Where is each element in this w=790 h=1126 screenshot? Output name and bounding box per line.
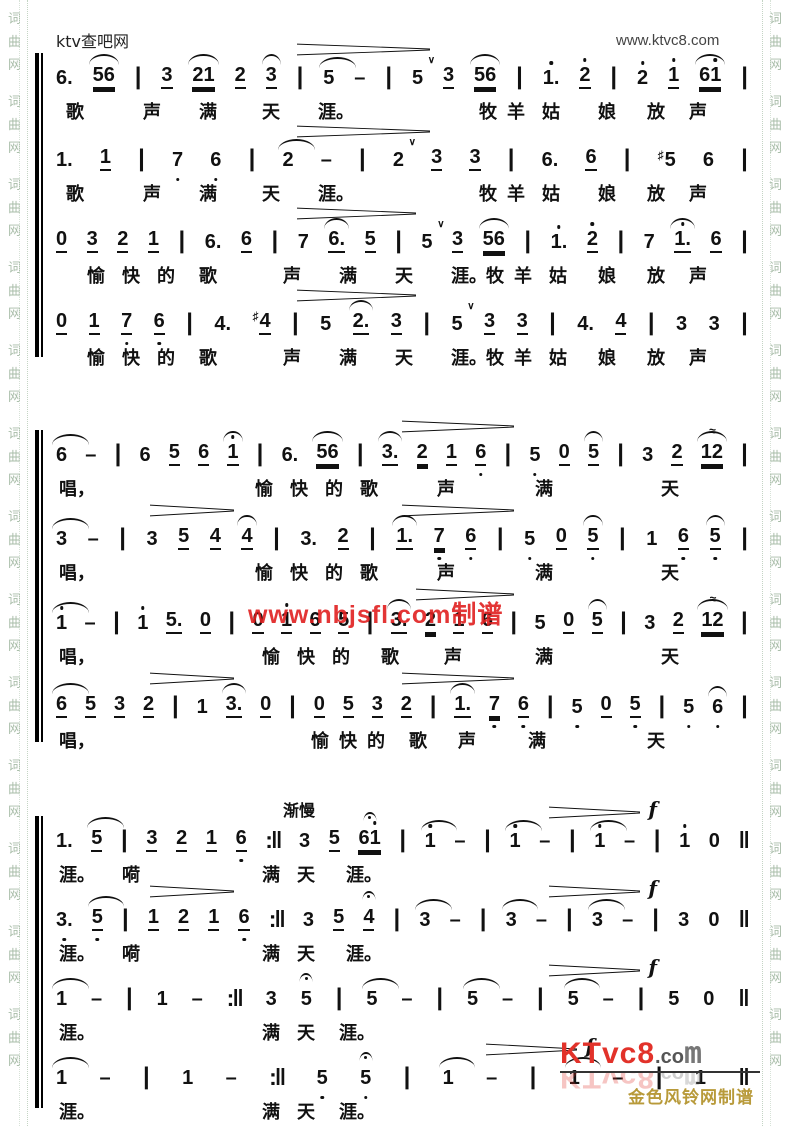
note-7: 7 (172, 150, 183, 171)
lyric-syllable: 涯。 (451, 262, 487, 288)
barline: | (423, 310, 430, 335)
hairpin-dynamic (297, 43, 430, 56)
hairpin-dynamic (297, 289, 416, 302)
border-gap (763, 492, 788, 506)
note-1dot: 1. (396, 526, 413, 550)
octave-dot-above (583, 58, 587, 62)
lyric-syllable: 歌 (360, 475, 378, 501)
tie-arc (463, 978, 500, 989)
border-character: 网 (2, 220, 27, 243)
music-line: 3.5|1216:‖354|3–|3–|3–|30‖ (52, 897, 752, 931)
border-character: 曲 (2, 363, 27, 386)
border-gap (763, 990, 788, 1004)
octave-dot-above (373, 821, 377, 825)
music-line: 0176|4.♯4|52.3|5∨33|4.4|33| (52, 301, 752, 335)
note-5: 5 (301, 989, 312, 1010)
barline: | (272, 228, 279, 253)
note-0: 0 (314, 694, 325, 718)
note-1: 1 (56, 1068, 67, 1089)
note-2: 2 (143, 694, 154, 718)
border-character: 网 (763, 635, 788, 658)
barline: | (186, 310, 193, 335)
dash-continuation: – (536, 910, 547, 931)
lyric-syllable: 的 (157, 262, 175, 288)
border-character: 曲 (763, 944, 788, 967)
lyric-syllable: 唱， (59, 727, 95, 753)
note-1dot: 1. (56, 150, 73, 171)
barline: | (395, 228, 402, 253)
lyric-syllable: 歌 (199, 344, 217, 370)
lyric-syllable: 快 (290, 559, 308, 585)
slur-arc (670, 218, 695, 229)
breath-mark-icon: ∨ (467, 302, 474, 312)
hairpin-dynamic: f (549, 885, 640, 898)
note-5: 5 (683, 697, 694, 718)
octave-dot-above (141, 606, 145, 610)
note-6: 6 (210, 150, 221, 171)
logo-wordmark: KTvc8.com (560, 1036, 765, 1071)
voice-row-4: 6532|13.0|0532|1.76|505|56|唱，愉快的歌声满天 (52, 684, 752, 768)
note-1: 1 (89, 311, 100, 335)
music-line: 1.5|3216:‖3561|1–|1–|1–|10‖ (52, 818, 752, 852)
note-6dot: 6. (542, 150, 559, 171)
note-3: 3 (87, 229, 98, 253)
lyric-syllable: 歌 (381, 643, 399, 669)
barline: | (257, 441, 264, 466)
breath-mark-icon: ∨ (437, 220, 444, 230)
tie-arc (52, 518, 89, 529)
border-character: 词 (2, 672, 27, 695)
border-character: 网 (2, 54, 27, 77)
barline: | (530, 1064, 537, 1089)
octave-dot-above (713, 58, 717, 62)
note-1: 1 (679, 831, 690, 852)
music-line: 1–|1–:‖35|5–|5–|5–|50‖ (52, 976, 752, 1010)
note-1: 1 (56, 613, 67, 634)
dash-continuation: – (226, 1068, 237, 1089)
note-1: 1 (668, 65, 679, 89)
note-5: 5 (317, 1068, 328, 1089)
barline: | (385, 64, 392, 89)
note-3: 3 (506, 910, 517, 931)
note-3dot: 3. (226, 694, 243, 718)
border-character: 网 (763, 801, 788, 824)
note-3: 3 (56, 529, 67, 550)
lyric-syllable: 满 (528, 727, 546, 753)
note-1: 1 (56, 989, 67, 1010)
repeat-barline: :‖ (227, 986, 242, 1010)
barline: | (504, 441, 511, 466)
note-4dot: 4. (577, 314, 594, 335)
note-4: 4 (210, 526, 221, 550)
barline: | (404, 1064, 411, 1089)
dash-continuation: – (603, 989, 614, 1010)
note-1: 1 (182, 1068, 193, 1089)
credit-text: 金色风铃网制谱 (628, 1083, 754, 1108)
border-character: 网 (2, 801, 27, 824)
note-3dot: 3. (382, 442, 399, 466)
dash-continuation: – (401, 989, 412, 1010)
lyric-syllable: 姑 (542, 180, 560, 206)
logo-brand-m: m (684, 1036, 705, 1071)
repeat-barline: :‖ (269, 907, 284, 931)
lyric-syllable: 满 (262, 940, 280, 966)
border-character: 网 (763, 967, 788, 990)
border-character: 词 (2, 91, 27, 114)
fermata-icon (363, 812, 376, 821)
note-3: 3 (592, 910, 603, 931)
note-5: 5 (343, 694, 354, 718)
note-2: 2 (176, 828, 187, 852)
lyric-syllable: 涯。 (451, 344, 487, 370)
barline: | (228, 609, 235, 634)
border-character: 词 (2, 838, 27, 861)
border-character: 曲 (2, 944, 27, 967)
border-gap (2, 160, 27, 174)
border-character: 词 (763, 921, 788, 944)
lyric-syllable: 的 (325, 475, 343, 501)
logo-brand-red: KTvc8 (560, 1037, 655, 1070)
note-3: 3 (299, 831, 310, 852)
barline: | (547, 693, 554, 718)
lyric-syllable: 涯。 (59, 861, 95, 887)
note-3: 3 (469, 147, 480, 171)
left-decorative-border: 词曲网词曲网词曲网词曲网词曲网词曲网词曲网词曲网词曲网词曲网词曲网词曲网词曲网 (2, 0, 28, 1126)
tie-arc (52, 1057, 89, 1068)
tie-arc (319, 57, 356, 68)
note-5: 5 (668, 989, 679, 1010)
lyric-syllable: 的 (325, 559, 343, 585)
final-barline: ‖ (738, 986, 747, 1010)
lyric-syllable: 涯。 (59, 1098, 95, 1124)
note-3: 3 (161, 65, 172, 89)
lyric-syllable: 歌 (66, 98, 84, 124)
lyric-syllable: 放 (647, 344, 665, 370)
note-3: 3 (266, 989, 277, 1010)
sheet-music-page: 词曲网词曲网词曲网词曲网词曲网词曲网词曲网词曲网词曲网词曲网词曲网词曲网词曲网 … (0, 0, 790, 1126)
barline: | (135, 64, 142, 89)
lyric-syllable: 天 (661, 475, 679, 501)
border-character: 词 (763, 838, 788, 861)
border-character: 网 (763, 552, 788, 575)
barline: | (648, 310, 655, 335)
voice-row-2: 3.5|1216:‖354|3–|3–|3–|30‖涯。嗬满天涯。f (52, 897, 752, 976)
dash-continuation: – (486, 1068, 497, 1089)
border-character: 网 (2, 635, 27, 658)
note-6dot: 6. (328, 229, 345, 253)
note-1: 1 (206, 828, 217, 852)
forte-mark: f (648, 955, 657, 979)
note-2: 2∨ (393, 150, 404, 171)
note-7: 7 (298, 232, 309, 253)
note-6: 6 (154, 311, 165, 335)
note-1: 1 (197, 697, 208, 718)
barline: | (369, 525, 376, 550)
lyric-syllable: 涯。 (59, 1019, 95, 1045)
note-6dot: 6. (282, 445, 299, 466)
lyric-syllable: 愉 (255, 475, 273, 501)
lyric-syllable: 娘 (598, 98, 616, 124)
lyric-syllable: 满 (262, 861, 280, 887)
border-character: 曲 (2, 1027, 27, 1050)
barline: | (741, 693, 748, 718)
lyrics-line: 唱，愉快的歌声满天 (52, 475, 752, 501)
barline: | (179, 228, 186, 253)
note-1dot: 1. (551, 232, 568, 253)
lyric-syllable: 涯。 (346, 861, 382, 887)
slur-arc (188, 54, 218, 65)
barline: | (126, 985, 133, 1010)
note-2: 2 (178, 907, 189, 931)
note-6: 6 (585, 147, 596, 171)
barline: | (115, 441, 122, 466)
octave-dot-above (641, 61, 645, 65)
tie-arc (502, 899, 539, 910)
hairpin-dynamic (402, 420, 514, 433)
final-barline: ‖ (739, 907, 748, 931)
note-2: 2 (282, 150, 293, 171)
note-6: 6 (238, 907, 249, 931)
lyric-syllable: 羊 (507, 180, 525, 206)
barline: | (357, 441, 364, 466)
note-2: 2 (235, 65, 246, 89)
trill-icon: ≈ (710, 593, 716, 605)
note-5: 5 (710, 526, 721, 550)
slur-arc (708, 686, 727, 697)
music-line: 6–|6561|6.56|3.216|505|3212≈| (52, 432, 752, 466)
note-5dot: 5. (166, 610, 183, 634)
lyric-syllable: 声 (444, 643, 462, 669)
tie-arc (505, 820, 542, 831)
lyric-syllable: 声 (689, 98, 707, 124)
site-url: www.ktvc8.com (616, 32, 719, 49)
lyric-syllable: 快 (290, 475, 308, 501)
border-character: 网 (763, 1050, 788, 1073)
lyric-syllable: 姑 (542, 98, 560, 124)
note-5: 5∨ (451, 314, 462, 335)
note-3: 3 (419, 910, 430, 931)
note-12: 12≈ (701, 610, 723, 634)
border-character: 词 (763, 8, 788, 31)
border-character: 词 (2, 423, 27, 446)
lyric-syllable: 愉 (87, 262, 105, 288)
note-1: 1 (157, 989, 168, 1010)
barline: | (617, 441, 624, 466)
barline: | (617, 228, 624, 253)
lyric-syllable: 歌 (360, 559, 378, 585)
border-character: 网 (763, 220, 788, 243)
border-gap (763, 160, 788, 174)
lyric-syllable: 娘 (598, 262, 616, 288)
note-6: 6 (712, 697, 723, 718)
lyric-syllable: 声 (437, 559, 455, 585)
barline: | (741, 441, 748, 466)
note-21: 21 (192, 65, 214, 89)
note-1: 1 (148, 907, 159, 931)
barline: | (249, 146, 256, 171)
barline: | (516, 64, 523, 89)
tie-arc (87, 817, 124, 828)
lyric-syllable: 天 (647, 727, 665, 753)
border-gap (2, 77, 27, 91)
dash-continuation: – (502, 989, 513, 1010)
lyric-syllable: 天 (661, 559, 679, 585)
barline: | (143, 1064, 150, 1089)
note-3: 3 (642, 445, 653, 466)
note-6: 6 (56, 445, 67, 466)
note-3: 3 (303, 910, 314, 931)
border-character: 词 (763, 1004, 788, 1027)
system-bracket (35, 816, 48, 1108)
border-character: 词 (2, 257, 27, 280)
border-gap (763, 907, 788, 921)
dash-continuation: – (192, 989, 203, 1010)
lyric-syllable: 牧 (479, 180, 497, 206)
note-1: 1 (148, 229, 159, 253)
note-6: 6 (241, 229, 252, 253)
lyric-syllable: 天 (661, 643, 679, 669)
barline: | (122, 906, 129, 931)
lyric-syllable: 娘 (598, 180, 616, 206)
octave-dot-above (549, 61, 553, 65)
note-7: 7 (489, 694, 500, 718)
music-line: 1.1|76|2–|2∨33|6.6|♯56| (52, 137, 752, 171)
dash-continuation: – (454, 831, 465, 852)
lyric-syllable: 声 (689, 344, 707, 370)
border-character: 词 (2, 589, 27, 612)
note-1: 1 (446, 442, 457, 466)
note-3: 3 (644, 613, 655, 634)
music-line: 6532|13.0|0532|1.76|505|56| (52, 684, 752, 718)
lyric-syllable: 天 (297, 1019, 315, 1045)
note-0: 0 (703, 989, 714, 1010)
lyric-syllable: 唱， (59, 559, 95, 585)
border-character: 曲 (763, 861, 788, 884)
note-4: 4 (241, 526, 252, 550)
note-6dot: 6. (205, 232, 222, 253)
note-0: 0 (56, 229, 67, 253)
border-character: 词 (2, 340, 27, 363)
lyrics-line: 愉快的歌声满天涯。牧羊姑娘放声 (52, 262, 752, 288)
tie-arc (415, 899, 452, 910)
barline: | (436, 985, 443, 1010)
tie-arc (88, 896, 125, 907)
octave-dot-above (683, 824, 687, 828)
lyrics-line: 唱，愉快的歌声满天 (52, 727, 752, 753)
note-1dot: 1. (454, 694, 471, 718)
dash-continuation: – (321, 150, 332, 171)
tie-arc (52, 978, 89, 989)
lyric-syllable: 唱， (59, 475, 95, 501)
lyric-syllable: 涯。 (318, 98, 354, 124)
barline: | (741, 310, 748, 335)
border-gap (2, 658, 27, 672)
lyric-syllable: 放 (647, 180, 665, 206)
border-character: 曲 (763, 446, 788, 469)
note-56: 56 (483, 229, 505, 253)
barline: | (273, 525, 280, 550)
dash-continuation: – (450, 910, 461, 931)
note-3: 3 (678, 910, 689, 931)
note-4: 4 (615, 311, 626, 335)
lyric-syllable: 声 (283, 262, 301, 288)
lyric-syllable: 满 (535, 475, 553, 501)
note-1: 1 (646, 529, 657, 550)
lyric-syllable: 牧 (479, 98, 497, 124)
lyric-syllable: 羊 (507, 98, 525, 124)
note-4dot: 4. (214, 314, 231, 335)
note-5: 5∨ (412, 68, 423, 89)
note-5: 5 (572, 697, 583, 718)
note-3: 3 (114, 694, 125, 718)
note-3: 3 (443, 65, 454, 89)
note-3: 3 (146, 828, 157, 852)
note-1: 1 (594, 831, 605, 852)
note-0: 0 (556, 526, 567, 550)
lyric-syllable: 天 (262, 98, 280, 124)
border-character: 词 (2, 1004, 27, 1027)
note-2: 2 (117, 229, 128, 253)
border-character: 曲 (2, 695, 27, 718)
note-5: 5 (320, 314, 331, 335)
note-2: 2 (671, 442, 682, 466)
border-character: 曲 (763, 197, 788, 220)
barline: | (741, 609, 748, 634)
lyrics-line: 涯。嗬满天涯。 (52, 861, 752, 887)
barline: | (121, 827, 128, 852)
note-0: 0 (601, 694, 612, 718)
lyric-syllable: 天 (395, 262, 413, 288)
tie-arc (52, 602, 89, 613)
hairpin-dynamic (150, 885, 234, 898)
border-character: 曲 (2, 612, 27, 635)
dash-continuation: – (354, 68, 365, 89)
note-3: 3 (372, 694, 383, 718)
border-character: 网 (2, 967, 27, 990)
border-character: 网 (763, 884, 788, 907)
lyric-syllable: 娘 (598, 344, 616, 370)
border-gap (763, 824, 788, 838)
barline: | (524, 228, 531, 253)
border-character: 词 (763, 340, 788, 363)
note-6: 6 (518, 694, 529, 718)
barline: | (741, 228, 748, 253)
note-56: 56 (316, 442, 338, 466)
note-6: 6 (236, 828, 247, 852)
note-56: 56 (93, 65, 115, 89)
note-12: 12≈ (701, 442, 723, 466)
lyric-syllable: 天 (395, 344, 413, 370)
barline: | (624, 146, 631, 171)
note-5: 5 (587, 526, 598, 550)
system-bracket (35, 53, 48, 357)
note-5: 5 (588, 442, 599, 466)
lyric-syllable: 羊 (514, 262, 532, 288)
note-0: 0 (563, 610, 574, 634)
slur-arc (588, 599, 607, 610)
dash-continuation: – (624, 831, 635, 852)
note-3: 3 (452, 229, 463, 253)
note-1dot: 1. (56, 831, 73, 852)
note-5: 5 (365, 229, 376, 253)
forte-mark: f (648, 876, 657, 900)
note-1: 1 (227, 442, 238, 466)
note-6: 6 (703, 150, 714, 171)
border-gap (763, 326, 788, 340)
note-56: 56 (474, 65, 496, 89)
border-gap (2, 990, 27, 1004)
border-character: 曲 (2, 446, 27, 469)
